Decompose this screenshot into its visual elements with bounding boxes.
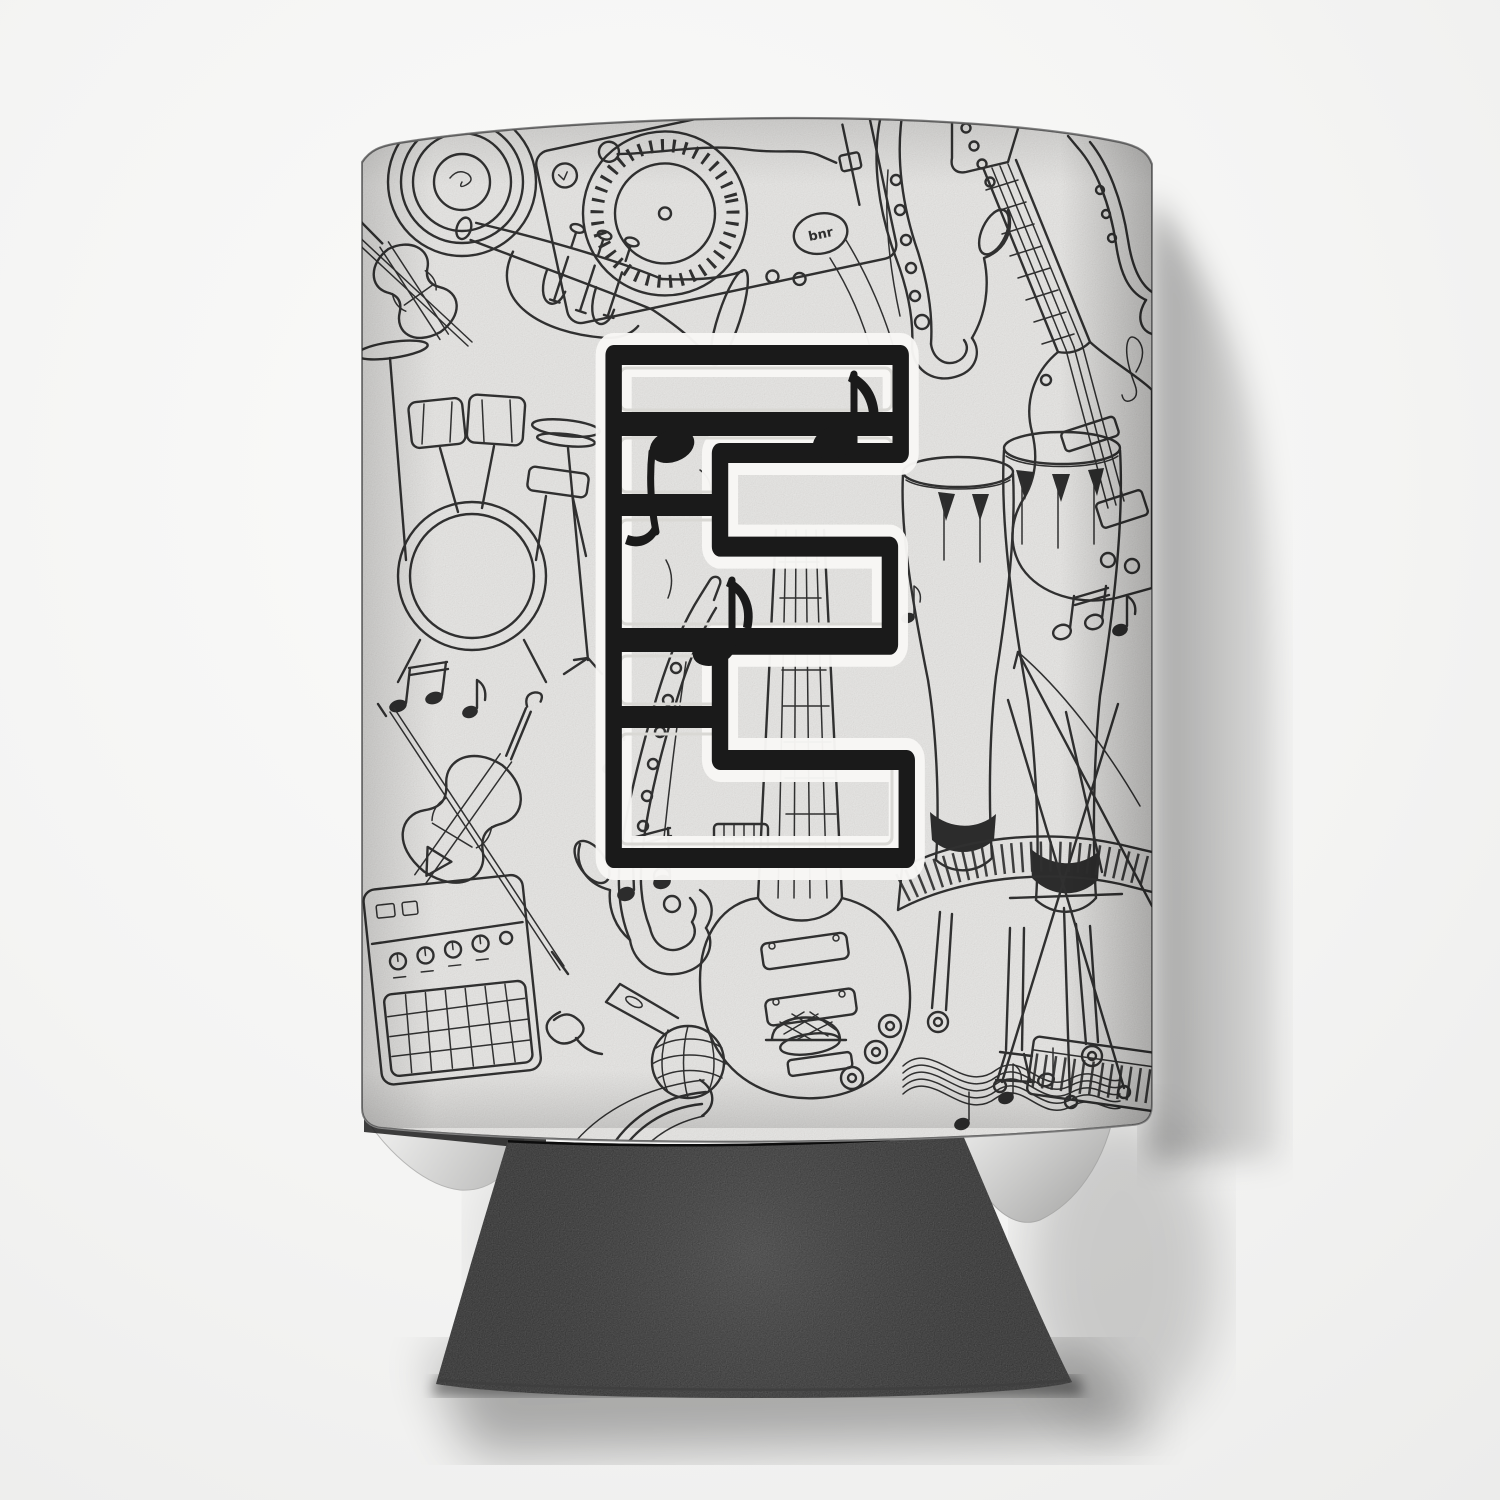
body-left-shading bbox=[362, 104, 437, 1146]
product-photo: E bbox=[0, 0, 1500, 1500]
body-top-shading bbox=[362, 104, 1152, 189]
body-bottom-shading bbox=[362, 1068, 1152, 1128]
photo-stage: E bbox=[0, 0, 1500, 1500]
monogram-outline: E bbox=[562, 217, 949, 1021]
body-right-shading bbox=[1058, 104, 1152, 1146]
monogram: E E bbox=[562, 217, 949, 1021]
right-cast-shadow bbox=[1150, 196, 1280, 1160]
